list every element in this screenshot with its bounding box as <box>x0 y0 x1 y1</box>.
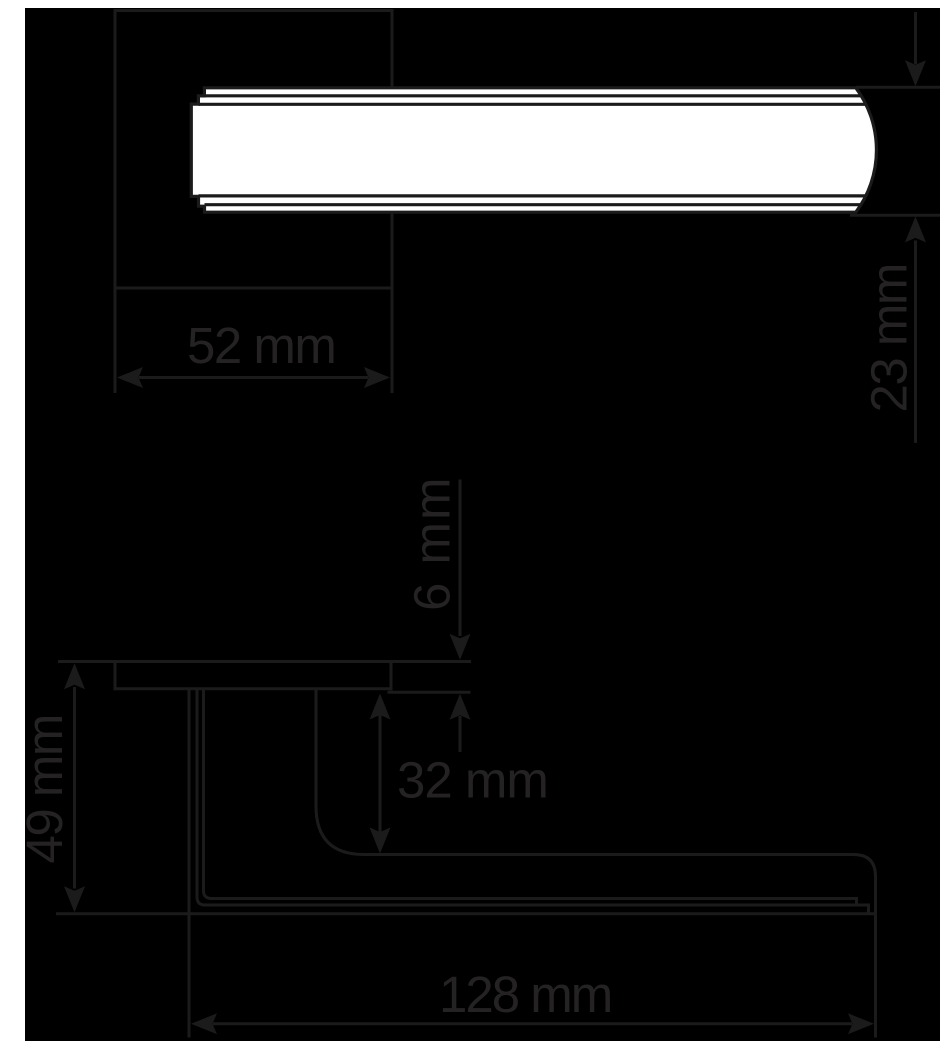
svg-text:23 mm: 23 mm <box>861 264 918 412</box>
svg-text:52 mm: 52 mm <box>187 317 335 374</box>
svg-text:32 mm: 32 mm <box>397 752 548 809</box>
svg-text:128 mm: 128 mm <box>439 966 611 1023</box>
svg-text:6 mm: 6 mm <box>404 476 461 612</box>
svg-text:49 mm: 49 mm <box>16 715 73 863</box>
